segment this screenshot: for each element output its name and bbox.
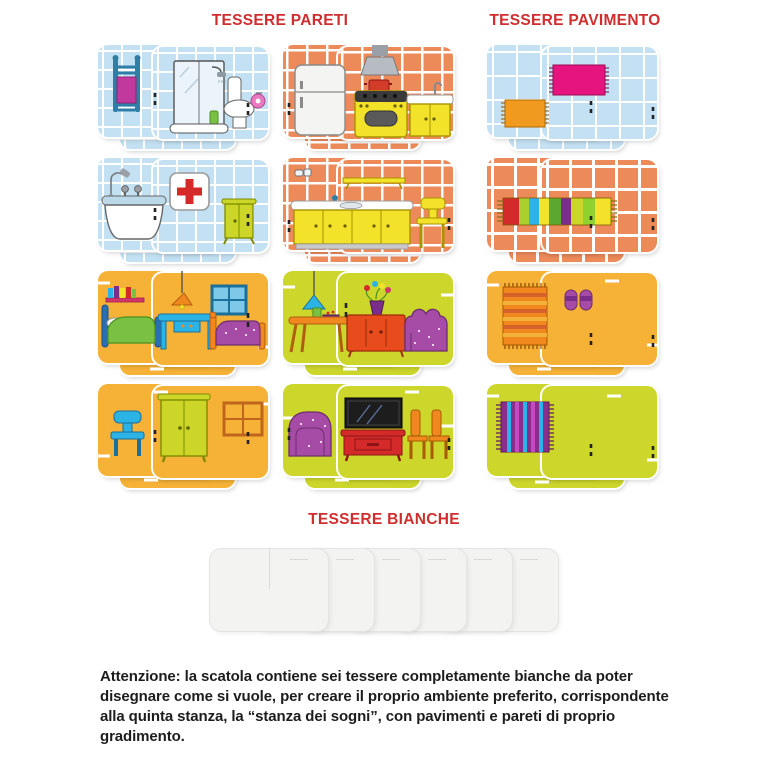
tile-card [338, 47, 453, 139]
blank-tiles-row [210, 549, 558, 633]
tile-group-kitchen-1 [283, 45, 455, 151]
tile-card [153, 386, 268, 478]
tile-group-floor-1 [487, 45, 659, 151]
tile-group-floor-3 [487, 271, 659, 377]
tile-card [542, 160, 657, 252]
tile-card [542, 273, 657, 365]
manual-page: TESSERE PARETI TESSERE PAVIMENTO [0, 0, 768, 768]
tile-card [542, 386, 657, 478]
tile-group-living-2 [283, 384, 455, 490]
blanks-section-title: TESSERE BIANCHE [210, 511, 558, 529]
tile-card [153, 160, 268, 252]
tile-card [338, 160, 453, 252]
tile-group-floor-4 [487, 384, 659, 490]
tile-group-bathroom-1 [98, 45, 270, 151]
tile-card [542, 47, 657, 139]
tile-group-living-1 [283, 271, 455, 377]
tile-card [338, 386, 453, 478]
tile-card [153, 47, 268, 139]
blank-tile [210, 549, 328, 631]
tile-group-bathroom-2 [98, 158, 270, 264]
tile-group-floor-2 [487, 158, 659, 264]
tile-group-kitchen-2 [283, 158, 455, 264]
footer-note: Attenzione: la scatola contiene sei tess… [100, 667, 680, 747]
floors-section-title: TESSERE PAVIMENTO [480, 12, 670, 30]
walls-section-title: TESSERE PARETI [98, 12, 462, 30]
tile-card [153, 273, 268, 365]
tile-group-bedroom-2 [98, 384, 270, 490]
tile-group-bedroom-1 [98, 271, 270, 377]
tile-card [338, 273, 453, 365]
